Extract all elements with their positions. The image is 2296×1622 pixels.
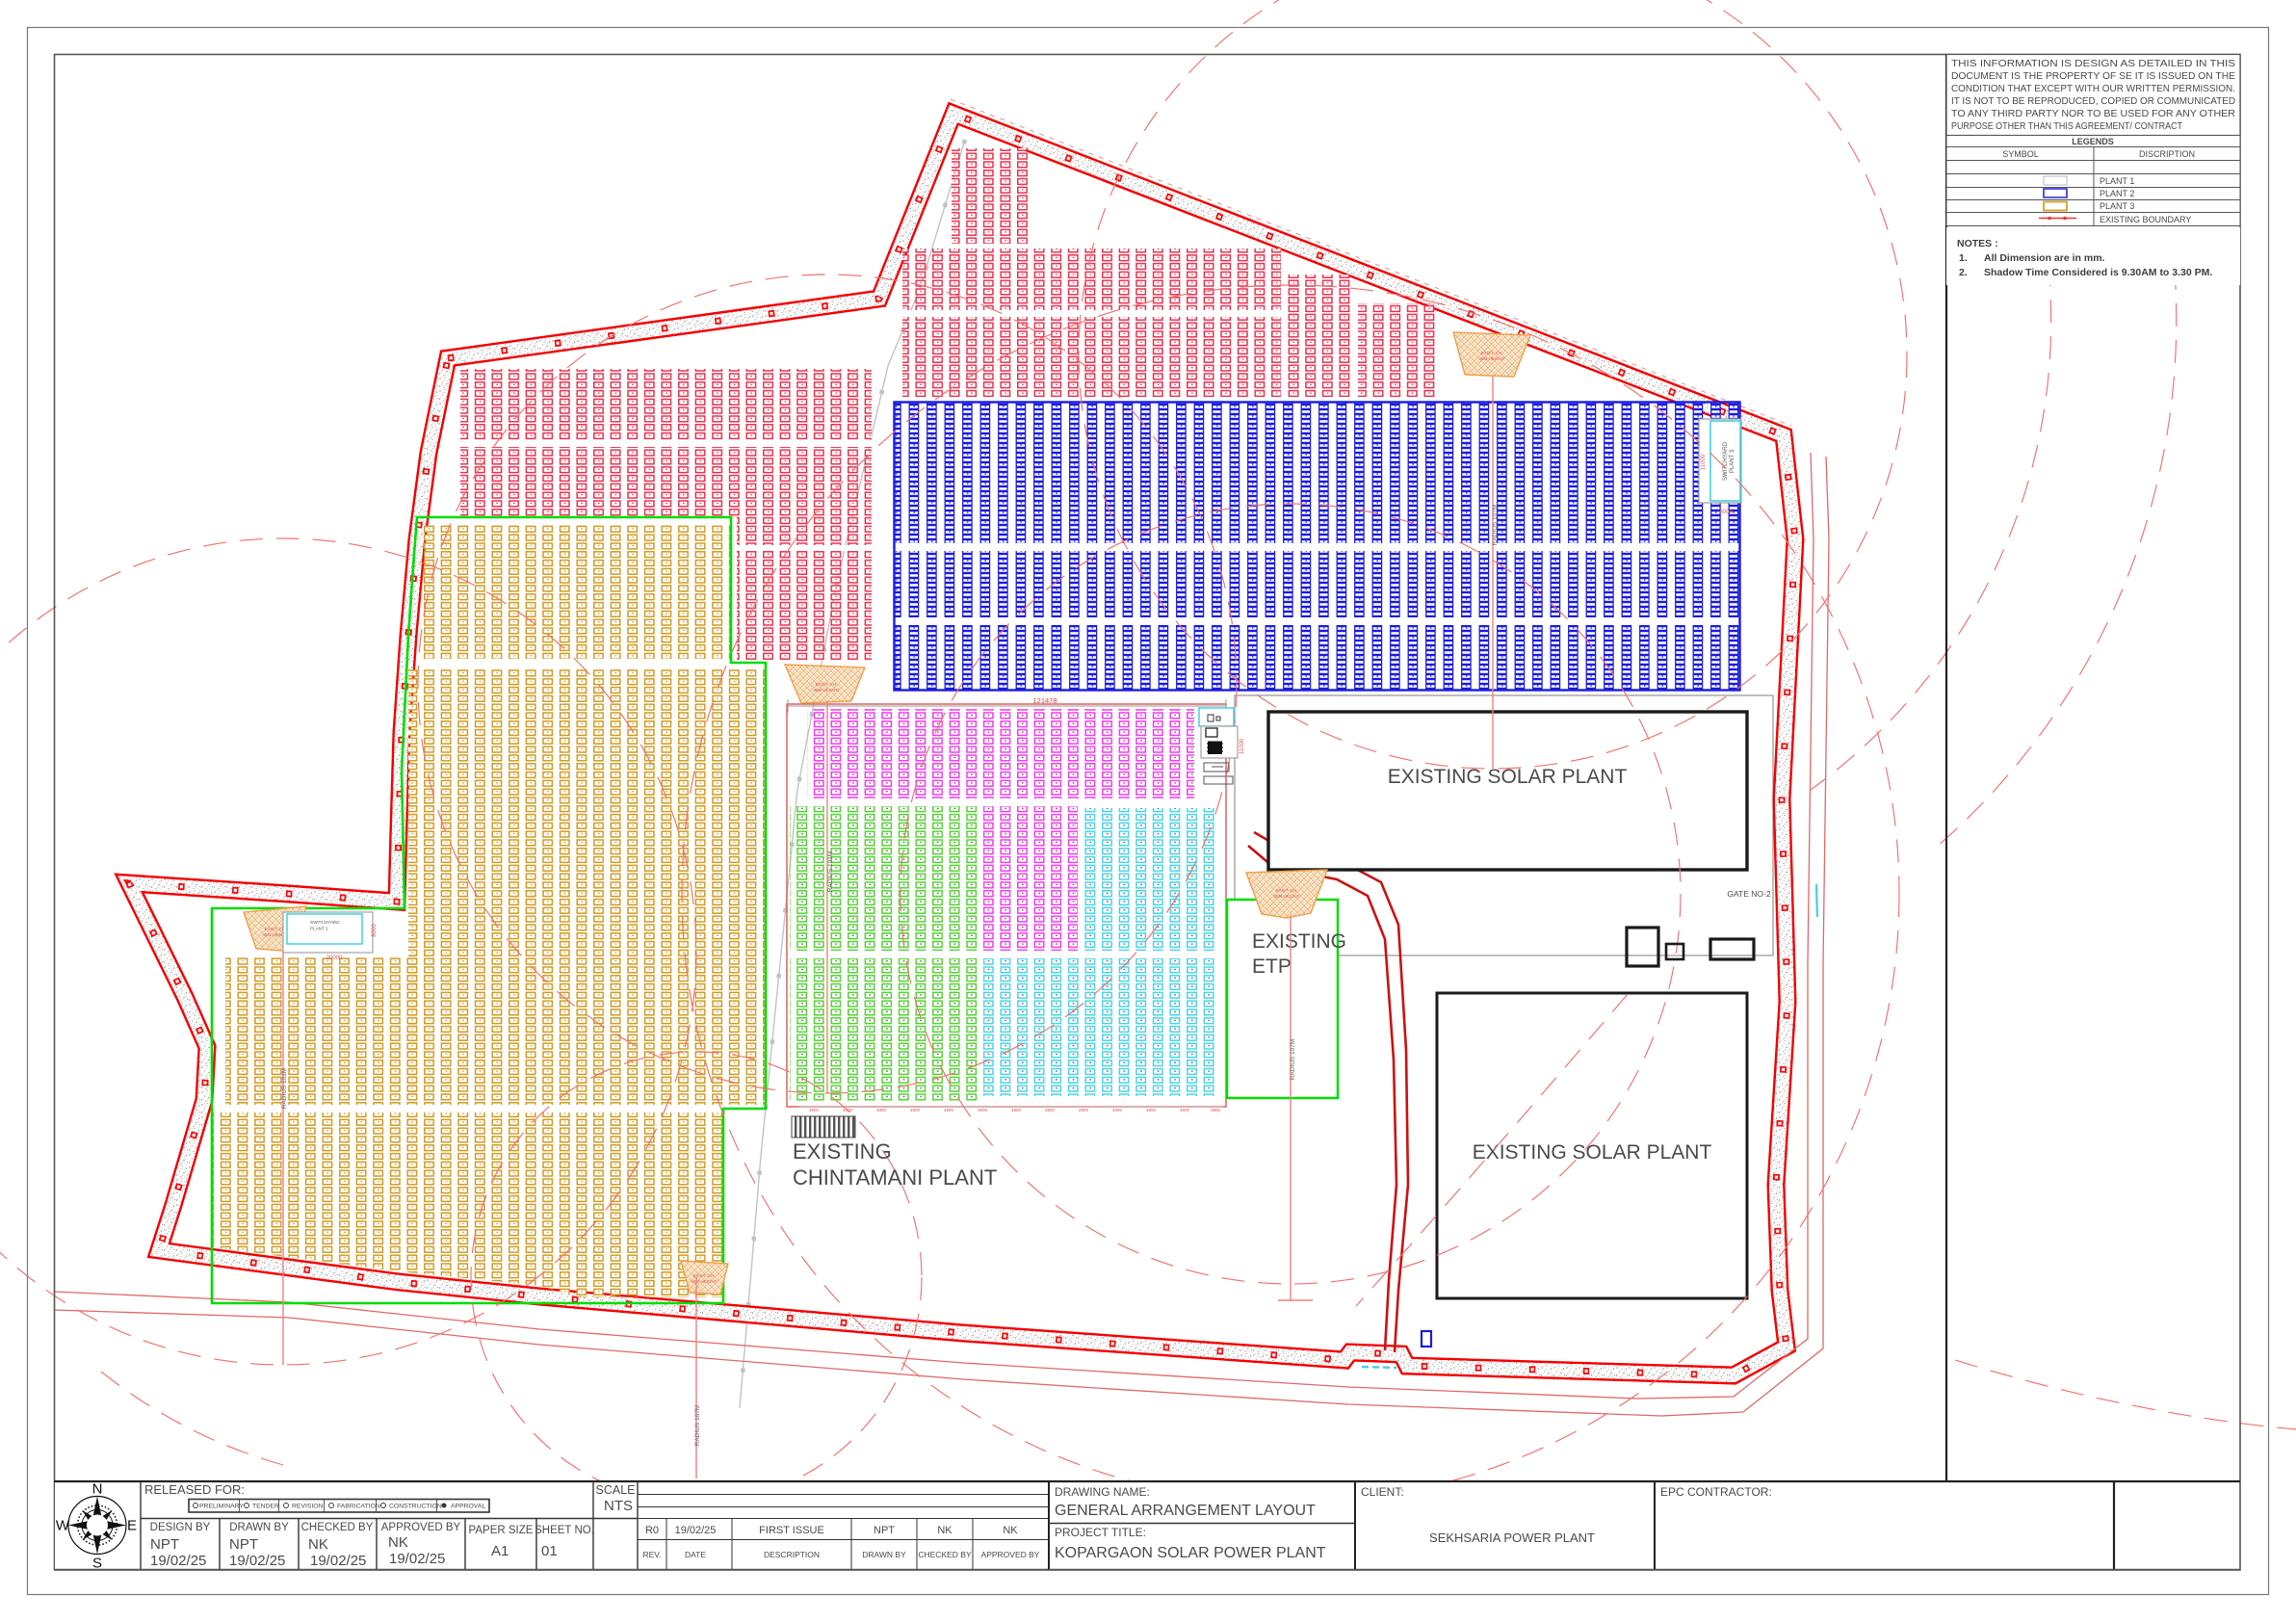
svg-text:IT IS NOT TO BE REPRODUCED, CO: IT IS NOT TO BE REPRODUCED, COPIED OR CO…: [1951, 96, 2235, 107]
svg-text:4800: 4800: [944, 1108, 954, 1112]
svg-text:8000: 8000: [1719, 510, 1733, 515]
svg-text:Shadow Time Considered is 9.30: Shadow Time Considered is 9.30AM to 3.30…: [1984, 267, 2212, 278]
svg-text:19/02/25: 19/02/25: [150, 1553, 206, 1569]
svg-text:NK: NK: [388, 1534, 408, 1551]
svg-text:EXISTING SOLAR PLANT: EXISTING SOLAR PLANT: [1473, 1141, 1712, 1164]
svg-text:THIS INFORMATION IS DESIGN: THIS INFORMATION IS DESIGN AS DETAILED I…: [1951, 59, 2235, 69]
svg-text:PLANT 3: PLANT 3: [1730, 449, 1735, 473]
svg-text:APPROVAL: APPROVAL: [451, 1504, 485, 1510]
svg-text:TO ANY THIRD PARTY NOR TO: TO ANY THIRD PARTY NOR TO BE USED FOR AN…: [1951, 109, 2235, 119]
svg-text:CONDITION THAT EXCEPT WITH OUR: CONDITION THAT EXCEPT WITH OUR WRITTEN P…: [1951, 84, 2235, 94]
svg-text:CONSTRUCTION: CONSTRUCTION: [389, 1504, 442, 1510]
svg-text:R0: R0: [645, 1525, 659, 1536]
svg-text:DISCRIPTION: DISCRIPTION: [2139, 149, 2195, 159]
svg-text:CHECKED BY: CHECKED BY: [918, 1550, 972, 1559]
svg-text:NK: NK: [1003, 1525, 1018, 1536]
svg-text:EXISTING SOLAR PLANT: EXISTING SOLAR PLANT: [1388, 766, 1628, 788]
svg-text:A1: A1: [491, 1543, 509, 1559]
svg-text:CHINTAMANI PLANT: CHINTAMANI PLANT: [793, 1165, 997, 1190]
svg-text:W: W: [56, 1518, 70, 1534]
svg-text:NK: NK: [308, 1536, 328, 1553]
svg-text:4800: 4800: [910, 1108, 921, 1112]
svg-text:NTS: NTS: [604, 1498, 633, 1514]
svg-text:19/02/25: 19/02/25: [389, 1551, 445, 1567]
svg-text:E: E: [127, 1518, 137, 1534]
svg-text:2.: 2.: [1959, 267, 1968, 278]
svg-text:4800: 4800: [1112, 1108, 1123, 1112]
svg-text:4800: 4800: [1180, 1108, 1190, 1112]
svg-text:NPT: NPT: [874, 1525, 895, 1536]
svg-text:PURPOSE OTHER THAN THIS AGREEM: PURPOSE OTHER THAN THIS AGREEMENT/ CONTR…: [1951, 121, 2182, 132]
svg-text:45M HEIGHT: 45M HEIGHT: [1478, 356, 1504, 361]
svg-text:PLANT 3: PLANT 3: [2100, 201, 2134, 211]
svg-text:DOCUMENT IS THE PROPERTY OF SE: DOCUMENT IS THE PROPERTY OF SE IT IS ISS…: [1951, 71, 2235, 82]
svg-text:20000: 20000: [326, 955, 343, 961]
svg-text:4800: 4800: [809, 1108, 820, 1112]
svg-text:DATE: DATE: [685, 1550, 706, 1559]
svg-text:PROJECT TITLE:: PROJECT TITLE:: [1055, 1526, 1146, 1539]
svg-text:EXIST. CH.: EXIST. CH.: [816, 682, 838, 687]
svg-text:PLANT 1: PLANT 1: [2100, 176, 2134, 186]
svg-text:SYMBOL: SYMBOL: [2002, 149, 2039, 159]
svg-text:NPT: NPT: [229, 1536, 258, 1553]
svg-text:FIRST ISSUE: FIRST ISSUE: [759, 1525, 824, 1536]
svg-text:PLANT 1: PLANT 1: [310, 927, 328, 931]
svg-text:4800: 4800: [1211, 1108, 1221, 1112]
svg-text:APPROVED BY: APPROVED BY: [381, 1522, 461, 1533]
svg-text:APPROVED BY: APPROVED BY: [981, 1550, 1040, 1559]
svg-text:4800: 4800: [1011, 1108, 1022, 1112]
svg-text:RADIUS 107M: RADIUS 107M: [1492, 505, 1499, 546]
svg-text:KOPARGAON SOLAR POWER PLANT: KOPARGAON SOLAR POWER PLANT: [1055, 1545, 1326, 1561]
svg-text:11000: 11000: [1239, 738, 1245, 754]
svg-text:NPT: NPT: [150, 1536, 179, 1553]
svg-text:1.: 1.: [1959, 252, 1968, 264]
svg-text:EXISTING: EXISTING: [793, 1139, 892, 1164]
svg-text:GENERAL ARRANGEMENT LAYOUT: GENERAL ARRANGEMENT LAYOUT: [1055, 1503, 1316, 1519]
svg-text:4800: 4800: [978, 1108, 988, 1112]
svg-text:SCALE: SCALE: [596, 1483, 636, 1497]
svg-text:PAPER SIZE: PAPER SIZE: [469, 1525, 534, 1536]
svg-text:FABRICATION: FABRICATION: [337, 1504, 380, 1510]
svg-text:4800: 4800: [1079, 1108, 1089, 1112]
svg-text:PRELIMINARY: PRELIMINARY: [199, 1504, 244, 1510]
svg-text:45M HEIGHT: 45M HEIGHT: [1273, 894, 1299, 899]
svg-text:SWITCHYARD: SWITCHYARD: [310, 920, 340, 925]
svg-text:EXIST. CH.: EXIST. CH.: [1276, 888, 1298, 893]
svg-text:EXISTING BOUNDARY: EXISTING BOUNDARY: [2100, 215, 2191, 224]
svg-text:RADIUS 101M: RADIUS 101M: [827, 851, 834, 893]
svg-text:01: 01: [541, 1543, 558, 1559]
svg-text:SWITCHYARD: SWITCHYARD: [1723, 441, 1729, 481]
svg-text:DESIGN BY: DESIGN BY: [150, 1522, 211, 1533]
svg-text:RADIUS 107M: RADIUS 107M: [694, 1405, 701, 1447]
svg-text:19/02/25: 19/02/25: [675, 1525, 717, 1536]
svg-text:EPC CONTRACTOR:: EPC CONTRACTOR:: [1660, 1485, 1772, 1499]
svg-text:121478: 121478: [1032, 696, 1057, 705]
svg-text:45M HEIGHT: 45M HEIGHT: [813, 688, 839, 693]
svg-text:TENDER: TENDER: [252, 1504, 279, 1510]
svg-text:ETP: ETP: [1252, 955, 1291, 978]
svg-text:LEGENDS: LEGENDS: [2072, 137, 2114, 146]
svg-text:DRAWN BY: DRAWN BY: [229, 1522, 289, 1533]
svg-text:REVISION: REVISION: [292, 1504, 324, 1510]
svg-text:11000: 11000: [1701, 454, 1707, 470]
svg-text:DESCRIPTION: DESCRIPTION: [764, 1550, 820, 1559]
svg-text:CHECKED BY: CHECKED BY: [301, 1522, 374, 1533]
svg-text:4800: 4800: [1045, 1108, 1056, 1112]
svg-text:PLANT 2: PLANT 2: [2100, 189, 2134, 198]
svg-text:45M HEIGHT: 45M HEIGHT: [691, 1279, 717, 1284]
svg-text:EXISTING: EXISTING: [1252, 930, 1346, 953]
svg-text:NK: NK: [937, 1525, 952, 1536]
svg-text:GATE NO-2: GATE NO-2: [1727, 889, 1770, 899]
svg-text:DRAWN BY: DRAWN BY: [862, 1550, 906, 1559]
svg-text:SEKHSARIA POWER PLANT: SEKHSARIA POWER PLANT: [1429, 1530, 1595, 1545]
svg-text:CLIENT:: CLIENT:: [1361, 1485, 1404, 1499]
svg-text:REV.: REV.: [642, 1550, 661, 1559]
svg-text:DRAWING NAME:: DRAWING NAME:: [1055, 1485, 1150, 1499]
svg-text:RADIUS 101M: RADIUS 101M: [281, 1068, 288, 1110]
svg-text:N: N: [92, 1481, 103, 1498]
svg-text:EXIST. CH.: EXIST. CH.: [1481, 351, 1503, 355]
svg-text:4800: 4800: [876, 1108, 887, 1112]
svg-text:4800: 4800: [1146, 1108, 1157, 1112]
svg-text:8000: 8000: [372, 924, 378, 937]
svg-text:All Dimension are in mm.: All Dimension are in mm.: [1984, 252, 2105, 264]
svg-text:SHEET NO.: SHEET NO.: [535, 1525, 594, 1536]
svg-text:RELEASED FOR:: RELEASED FOR:: [144, 1482, 245, 1497]
svg-text:19/02/25: 19/02/25: [229, 1553, 285, 1569]
svg-text:S: S: [92, 1556, 102, 1572]
svg-text:NOTES :: NOTES :: [1957, 238, 1998, 249]
svg-text:RADIUS 107M: RADIUS 107M: [1290, 1039, 1296, 1081]
svg-text:19/02/25: 19/02/25: [310, 1553, 366, 1569]
